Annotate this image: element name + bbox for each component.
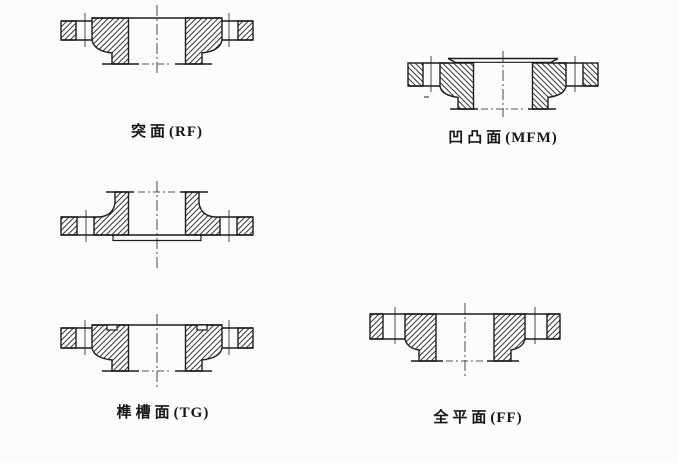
- tg-rim-left-hatched: [61, 328, 76, 348]
- rf-hub-right-hatched: [186, 18, 223, 64]
- caption-mfm-chinese: 凹凸面: [448, 130, 505, 146]
- mfm-rim-left-hatched: [408, 63, 423, 86]
- figure-rf-flange-section: [61, 5, 253, 76]
- inv-hub-right-hatched: [186, 192, 221, 235]
- mfm-hub-left-hatched: [440, 63, 474, 109]
- scanned-diagram-page: 突面(RF) 凹凸面(MFM) 榫槽面(TG) 全平面(FF): [0, 0, 678, 463]
- figure-inverted-flange-section: [61, 181, 253, 268]
- caption-tg-chinese: 榫槽面: [117, 405, 174, 421]
- caption-mfm: 凹凸面(MFM): [448, 126, 557, 147]
- caption-rf: 突面(RF): [131, 120, 203, 141]
- caption-ff: 全平面(FF): [433, 406, 522, 427]
- caption-ff-code: (FF): [490, 410, 522, 426]
- ff-rim-left-hatched: [370, 314, 383, 339]
- caption-rf-code: (RF): [169, 124, 203, 140]
- caption-mfm-code: (MFM): [505, 130, 557, 146]
- mfm-hub-right-hatched: [533, 63, 567, 109]
- flange-diagram-svg: [0, 0, 678, 463]
- ff-rim-right-hatched: [547, 314, 560, 339]
- rf-rim-right-hatched: [238, 21, 253, 40]
- figure-tg-flange-section: [61, 314, 253, 389]
- caption-tg: 榫槽面(TG): [117, 401, 210, 422]
- figure-mfm-flange-section: [408, 51, 598, 117]
- tg-rim-right-hatched: [238, 328, 253, 348]
- rf-hub-left-hatched: [92, 18, 129, 64]
- tg-groove-notch-right: [197, 325, 207, 330]
- ff-hub-right-hatched: [494, 314, 525, 361]
- inv-rim-left-hatched: [61, 217, 77, 235]
- mfm-rim-right-hatched: [583, 63, 598, 86]
- rf-rim-left-hatched: [61, 21, 76, 40]
- caption-ff-chinese: 全平面: [433, 410, 490, 426]
- tg-groove-notch-left: [107, 325, 117, 330]
- tg-hub-left-hatched: [92, 325, 129, 371]
- ff-hub-left-hatched: [405, 314, 436, 361]
- figure-ff-flange-section: [370, 303, 560, 377]
- inv-rim-right-hatched: [237, 217, 253, 235]
- caption-rf-chinese: 突面: [131, 124, 169, 140]
- inv-hub-left-hatched: [94, 192, 129, 235]
- tg-hub-right-hatched: [186, 325, 223, 371]
- caption-tg-code: (TG): [174, 405, 210, 421]
